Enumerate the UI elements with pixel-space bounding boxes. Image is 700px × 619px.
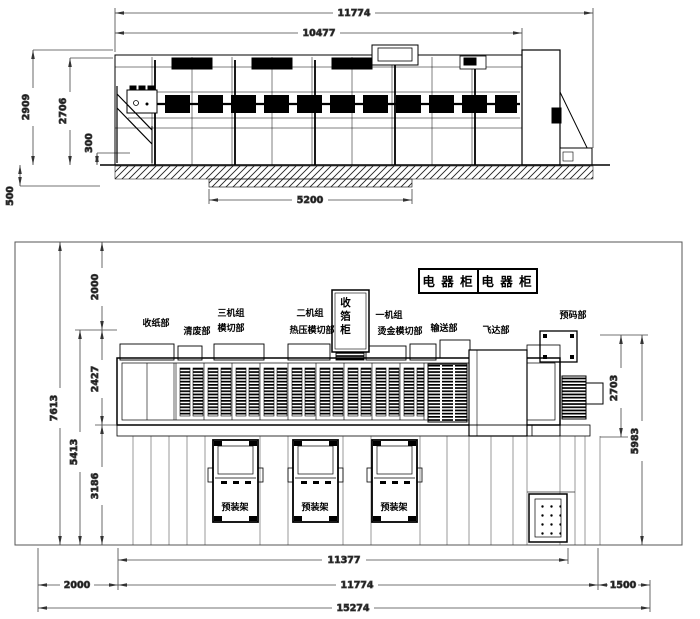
- label-unit3-line1: 三机组: [217, 307, 244, 319]
- label-unit3-line2: 模切部: [217, 322, 244, 334]
- console-knob: [148, 86, 154, 90]
- top-accessories: [120, 340, 470, 360]
- plan-view: 电 器 柜 电 器 柜: [15, 242, 682, 614]
- label-waste-cleaning: 清废部: [183, 325, 210, 337]
- label-unit1-line2: 烫金模切部: [377, 325, 422, 337]
- electric-cabinets: 电 器 柜 电 器 柜: [419, 269, 537, 293]
- dim-lower-width-label: 3186: [90, 472, 101, 499]
- slat-columns: [180, 368, 424, 416]
- dim-machine-height-label: 2706: [58, 97, 69, 124]
- drawing-canvas: 11774 10477 2909 2706 300 500 5200: [0, 0, 700, 619]
- label-unit1-line1: 一机组: [375, 309, 402, 321]
- conveyor-block: [428, 364, 467, 422]
- preload-rack-3: 预装架: [367, 440, 422, 522]
- feeder-box: [469, 350, 527, 436]
- preload-rack-2: 预装架: [288, 440, 343, 522]
- label-unit2-line1: 二机组: [296, 307, 323, 319]
- dim-pit-length-label: 5200: [297, 195, 324, 206]
- foil-cabinet-label: 收箔柜: [339, 296, 351, 337]
- unit-top-panel: [252, 58, 292, 69]
- aux-panel-screen: [464, 58, 476, 65]
- pit-hatch: [209, 179, 412, 187]
- electric-cabinet-right-label: 电 器 柜: [481, 274, 532, 289]
- label-conveyor: 输送部: [430, 322, 457, 334]
- dim-left-gap-label: 2000: [90, 273, 101, 300]
- floor-slab-hatch: [115, 166, 593, 179]
- plan-dimensions-right: 2703 5983: [600, 335, 648, 545]
- preload-rack-3-label: 预装架: [380, 501, 407, 513]
- plan-dimensions-left: 7613 5413 2000 2427 3186: [49, 242, 117, 545]
- dim-machine-length-label: 11377: [327, 555, 360, 566]
- label-prestack: 预码部: [559, 309, 586, 321]
- prestack-frame-ticks: [543, 334, 574, 359]
- dim-left-total-label: 7613: [49, 395, 60, 421]
- dim-band-width-label: 2427: [90, 366, 101, 392]
- dim-bottom-machine-label: 11774: [340, 580, 373, 591]
- dim-bottom-left-gap-label: 2000: [64, 580, 91, 591]
- preload-rack-1: 预装架: [208, 440, 263, 522]
- console-button: [146, 103, 149, 106]
- label-paper-delivery: 收纸部: [142, 317, 169, 329]
- plan-machine: 收箔柜: [117, 290, 560, 436]
- plan-dimensions-bottom: 11377 2000 11774 1500 15274: [38, 548, 650, 614]
- dim-right-inner-label: 2703: [609, 375, 620, 401]
- dim-left-inner-label: 5413: [69, 439, 80, 465]
- dim-platform-height-label: 300: [84, 133, 95, 153]
- cabinet-panel: [552, 108, 561, 123]
- elevation-view: 11774 10477 2909 2706 300 500 5200: [5, 8, 610, 206]
- electric-cabinet-left-label: 电 器 柜: [422, 274, 473, 289]
- elevation-machine: [115, 45, 592, 165]
- prestack-motor: [562, 376, 586, 419]
- elevation-floor: [100, 165, 610, 187]
- label-unit2-line2: 热压模切部: [289, 324, 334, 336]
- dim-right-outer-label: 5983: [630, 428, 641, 454]
- pallet-dotted: [535, 499, 561, 537]
- preload-racks: 预装架 预装架: [208, 440, 422, 522]
- console-knob: [139, 86, 145, 90]
- dim-foundation-depth-label: 500: [5, 186, 16, 206]
- prestack-base: [532, 425, 590, 436]
- prestack-bracket: [586, 383, 603, 404]
- machine-layout-drawing: 11774 10477 2909 2706 300 500 5200: [0, 0, 700, 619]
- dim-bottom-total-label: 15274: [336, 603, 369, 614]
- pallet: [529, 494, 567, 542]
- unit-top-panel: [332, 58, 372, 69]
- dim-total-length-label: 11774: [337, 8, 370, 19]
- dim-overall-height-label: 2909: [21, 94, 32, 120]
- label-feeder: 飞达部: [482, 324, 509, 336]
- dim-body-length-label: 10477: [302, 28, 335, 39]
- unit-top-panel: [172, 58, 212, 69]
- dim-bottom-right-gap-label: 1500: [610, 580, 637, 591]
- right-low-unit: [560, 148, 592, 165]
- preload-rack-1-label: 预装架: [221, 501, 248, 513]
- preload-rack-2-label: 预装架: [301, 501, 328, 513]
- console-knob: [130, 86, 136, 90]
